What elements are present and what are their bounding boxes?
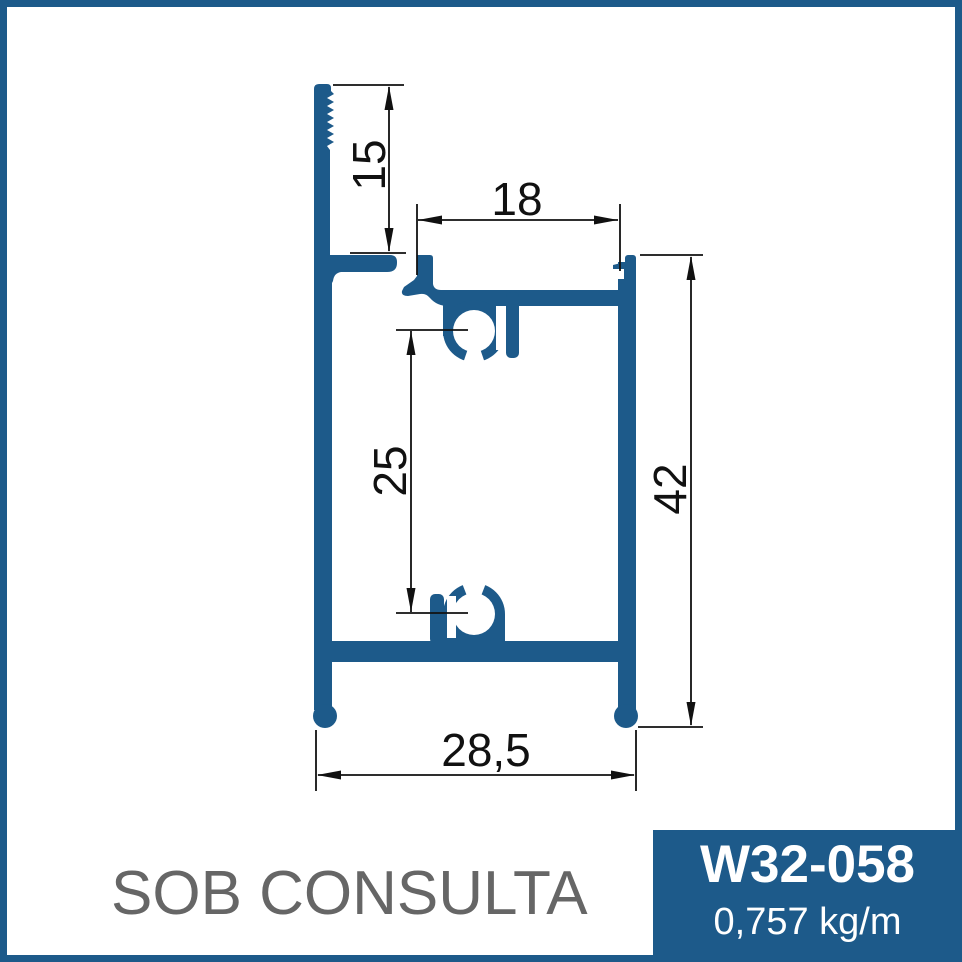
product-code-box: W32-058 0,757 kg/m	[653, 830, 962, 962]
bottom-screw-boss-finger	[430, 594, 444, 644]
catalog-page: 15 18 25 42 28,5 SOB CONSULTA W32-058 0,…	[0, 0, 962, 962]
top-boss-slot	[496, 306, 505, 350]
right-lip-notch	[611, 269, 624, 279]
profile-technical-drawing: 15 18 25 42 28,5	[0, 0, 962, 962]
availability-label: SOB CONSULTA	[111, 863, 588, 925]
fin-serration	[314, 84, 334, 258]
left-foot	[313, 704, 337, 728]
right-foot	[614, 704, 638, 728]
top-screw-boss-finger	[506, 292, 519, 358]
bottom-boss-slot	[447, 596, 456, 638]
right-lip	[625, 255, 636, 267]
weight-per-meter: 0,757 kg/m	[653, 900, 962, 944]
dimension-label-25: 25	[364, 445, 416, 496]
dimension-label-18: 18	[491, 173, 542, 225]
dimension-label-42: 42	[644, 463, 696, 514]
profile-cutouts	[447, 269, 624, 638]
dimension-label-28-5: 28,5	[441, 724, 531, 776]
bottom-web	[315, 641, 636, 662]
dimension-label-15: 15	[343, 139, 395, 190]
product-code: W32-058	[653, 836, 962, 894]
dimension-labels: 15 18 25 42 28,5	[343, 139, 696, 776]
